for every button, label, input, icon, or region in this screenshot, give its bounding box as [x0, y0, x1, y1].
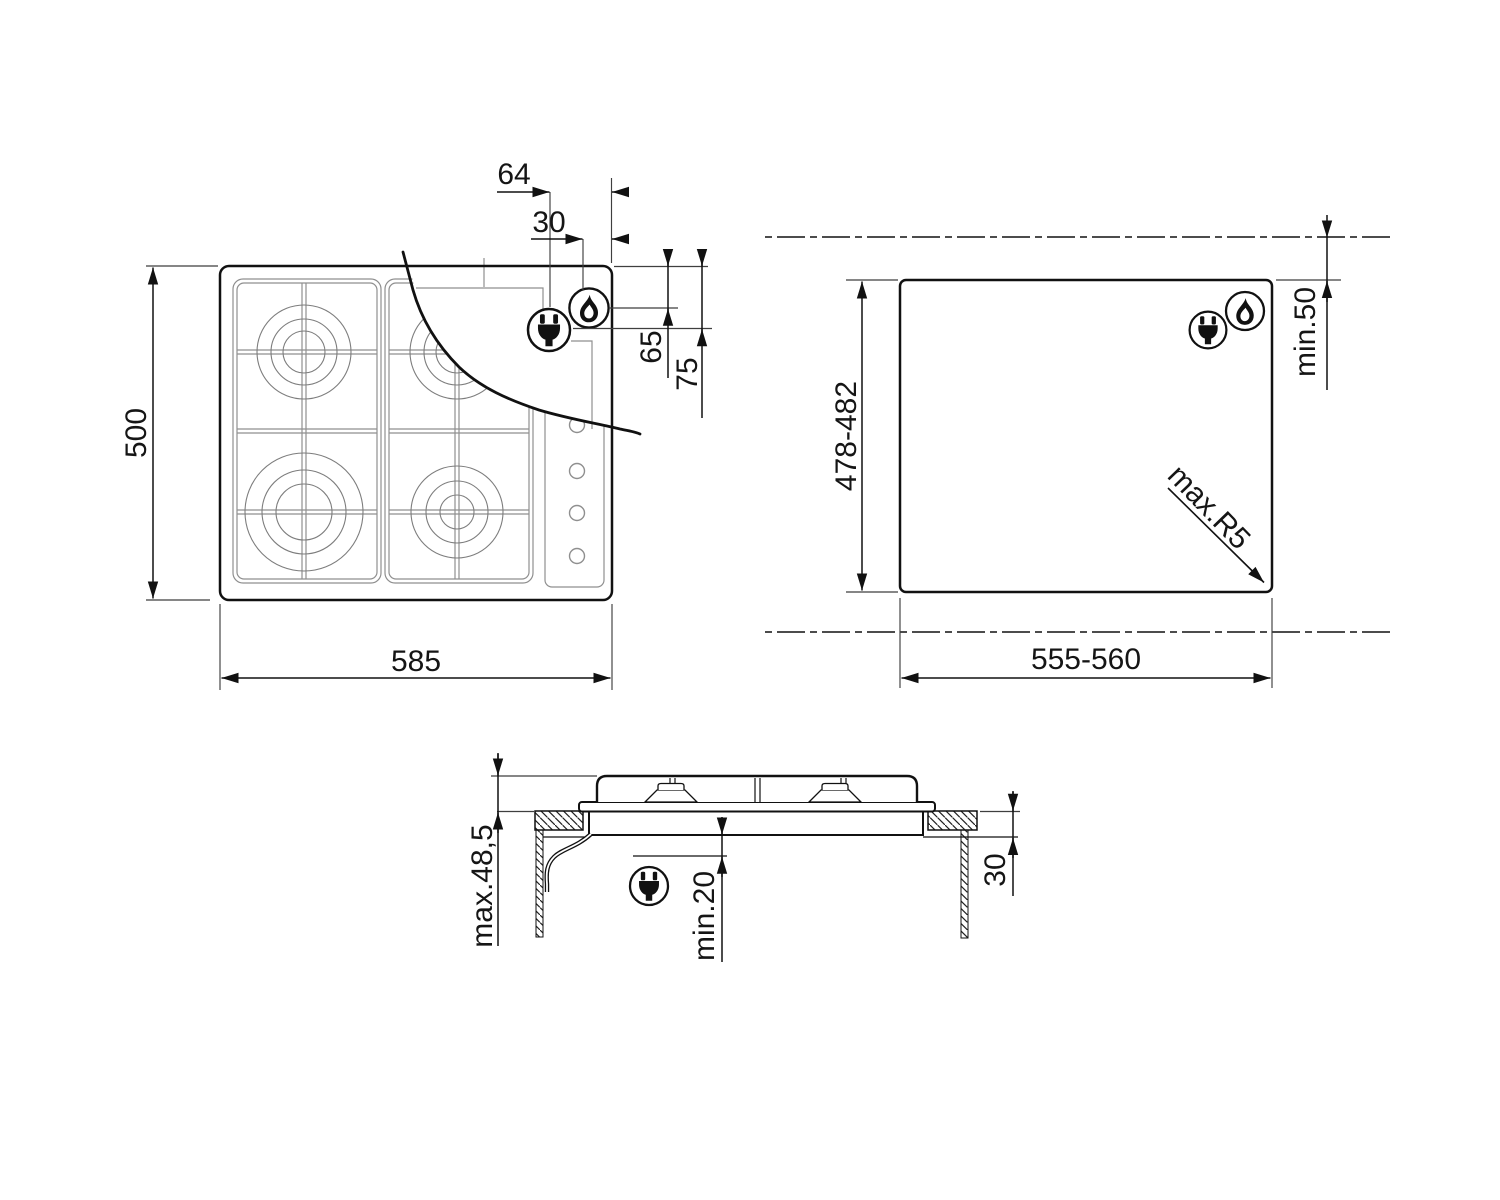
pan-support-profile [597, 776, 917, 802]
dim-clearance-below: min.20 [688, 871, 721, 961]
worktop-section-left [535, 811, 583, 830]
flame-icon [1226, 292, 1264, 330]
cabinet-panel-right [961, 830, 968, 938]
plug-icon [528, 309, 570, 351]
plug-icon [630, 867, 668, 905]
dim-hob-depth: 500 [120, 408, 153, 458]
dim-cutout-width: 555-560 [1031, 643, 1141, 676]
dim-rear-clearance: min.50 [1289, 287, 1322, 377]
cabinet-panel-left [536, 830, 543, 937]
dim-hob-width: 585 [391, 645, 441, 678]
dim-cutout-depth: 478-482 [830, 381, 863, 491]
control-knob [570, 464, 585, 479]
side-section-view: max.48,5 min.20 30 [466, 753, 1020, 962]
worktop-section-right [928, 811, 977, 830]
dim-plug-offset: 64 [497, 158, 530, 191]
hob-rim [579, 802, 935, 812]
flame-icon [569, 288, 608, 327]
hob-tub [589, 811, 923, 835]
dim-gas-offset: 30 [532, 206, 565, 239]
dim-height-above: max.48,5 [466, 824, 499, 947]
supply-cable [547, 834, 591, 892]
plug-icon [1190, 312, 1227, 349]
control-knob [570, 549, 585, 564]
dim-gas-drop: 65 [635, 330, 668, 363]
dim-worktop-depth: 30 [979, 853, 1012, 886]
control-knob [570, 506, 585, 521]
installation-diagram-page: 500 585 64 30 65 75 [0, 0, 1500, 1200]
worktop-cutout-view: 478-482 555-560 min.50 max.R5 [765, 215, 1390, 688]
installation-diagram: 500 585 64 30 65 75 [0, 0, 1500, 1200]
dim-plug-drop: 75 [671, 357, 704, 390]
hob-top-view: 500 585 64 30 65 75 [120, 158, 712, 690]
